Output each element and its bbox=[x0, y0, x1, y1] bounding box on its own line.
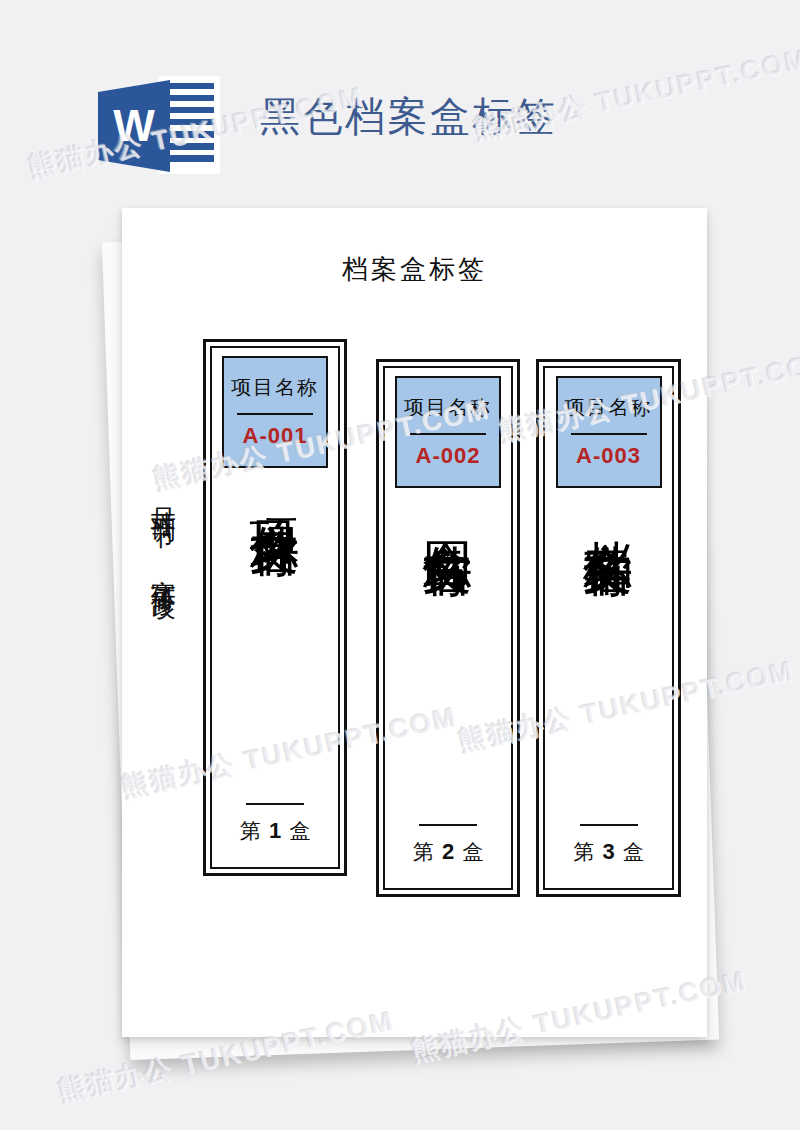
document-title: 档案盒标签 bbox=[122, 255, 707, 285]
label-header-title: 项目名称 bbox=[224, 374, 326, 401]
label-header-divider bbox=[410, 433, 486, 435]
box-prefix: 第 bbox=[240, 817, 261, 845]
label-footer-divider bbox=[246, 803, 304, 805]
label-header: 项目名称 A-003 bbox=[556, 376, 662, 488]
word-icon: W bbox=[98, 74, 222, 178]
label-header-divider bbox=[237, 413, 313, 415]
box-prefix: 第 bbox=[573, 838, 594, 866]
archive-label-3: 项目名称 A-003 档案文件名称 第 3 盒 bbox=[536, 359, 681, 897]
document-page: 档案盒标签 尺寸可调节 字体可修改 项目名称 A-001 项目文件名称 第 1 … bbox=[122, 208, 707, 1037]
word-icon-letter: W bbox=[113, 101, 155, 151]
archive-label-1: 项目名称 A-001 项目文件名称 第 1 盒 bbox=[203, 339, 347, 876]
box-number: 3 bbox=[602, 839, 614, 865]
archive-label-frame: 项目名称 A-002 合同文件名称 第 2 盒 bbox=[383, 366, 513, 890]
box-suffix: 盒 bbox=[289, 817, 310, 845]
label-box-number: 第 3 盒 bbox=[573, 838, 643, 866]
label-header-divider bbox=[571, 433, 647, 435]
label-header-title: 项目名称 bbox=[397, 394, 499, 421]
template-header: W 黑色档案盒标签 bbox=[0, 0, 800, 200]
label-box-number: 第 2 盒 bbox=[413, 838, 483, 866]
label-file-name: 项目文件名称 bbox=[250, 480, 300, 492]
archive-label-2: 项目名称 A-002 合同文件名称 第 2 盒 bbox=[376, 359, 520, 897]
box-number: 2 bbox=[442, 839, 454, 865]
label-header: 项目名称 A-002 bbox=[395, 376, 501, 488]
label-file-name: 档案文件名称 bbox=[584, 500, 634, 512]
side-note: 尺寸可调节 字体可修改 bbox=[148, 487, 177, 580]
side-note-line-1: 尺寸可调节 bbox=[150, 487, 177, 507]
page-background: W 黑色档案盒标签 档案盒标签 尺寸可调节 字体可修改 项目名称 A-001 项… bbox=[0, 0, 800, 1130]
label-code: A-002 bbox=[397, 443, 499, 469]
template-title: 黑色档案盒标签 bbox=[260, 94, 558, 138]
archive-label-frame: 项目名称 A-001 项目文件名称 第 1 盒 bbox=[210, 346, 340, 869]
word-icon-text-lines bbox=[167, 83, 214, 167]
label-box-number: 第 1 盒 bbox=[240, 817, 310, 845]
box-prefix: 第 bbox=[413, 838, 434, 866]
label-code: A-003 bbox=[558, 443, 660, 469]
box-number: 1 bbox=[269, 818, 281, 844]
label-file-name: 合同文件名称 bbox=[423, 500, 473, 512]
label-footer-divider bbox=[419, 824, 477, 826]
label-header-title: 项目名称 bbox=[558, 394, 660, 421]
side-note-line-2: 字体可修改 bbox=[150, 560, 177, 580]
archive-label-frame: 项目名称 A-003 档案文件名称 第 3 盒 bbox=[543, 366, 674, 890]
label-footer-divider bbox=[580, 824, 638, 826]
label-code: A-001 bbox=[224, 423, 326, 449]
label-header: 项目名称 A-001 bbox=[222, 356, 328, 468]
box-suffix: 盒 bbox=[462, 838, 483, 866]
word-icon-flag: W bbox=[98, 80, 170, 172]
box-suffix: 盒 bbox=[623, 838, 644, 866]
